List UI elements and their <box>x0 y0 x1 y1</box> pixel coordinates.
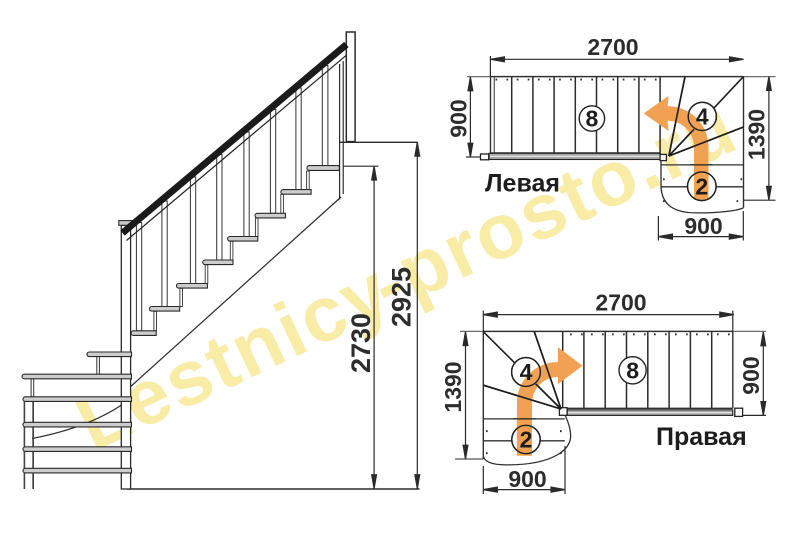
svg-text:8: 8 <box>626 358 639 384</box>
svg-text:900: 900 <box>508 466 546 492</box>
svg-text:2700: 2700 <box>595 290 646 316</box>
svg-text:4: 4 <box>520 359 533 385</box>
svg-text:2: 2 <box>695 174 708 200</box>
svg-text:Левая: Левая <box>485 170 560 198</box>
svg-text:1390: 1390 <box>440 361 466 412</box>
svg-text:2: 2 <box>520 427 533 453</box>
svg-text:Правая: Правая <box>656 423 747 451</box>
svg-text:900: 900 <box>738 356 764 394</box>
svg-text:2925: 2925 <box>387 267 417 327</box>
svg-text:900: 900 <box>684 213 722 239</box>
svg-text:900: 900 <box>446 99 472 137</box>
svg-text:4: 4 <box>696 104 709 130</box>
svg-text:8: 8 <box>586 106 599 132</box>
svg-text:1390: 1390 <box>744 109 770 160</box>
svg-text:2700: 2700 <box>587 34 638 60</box>
svg-text:2730: 2730 <box>346 313 376 373</box>
